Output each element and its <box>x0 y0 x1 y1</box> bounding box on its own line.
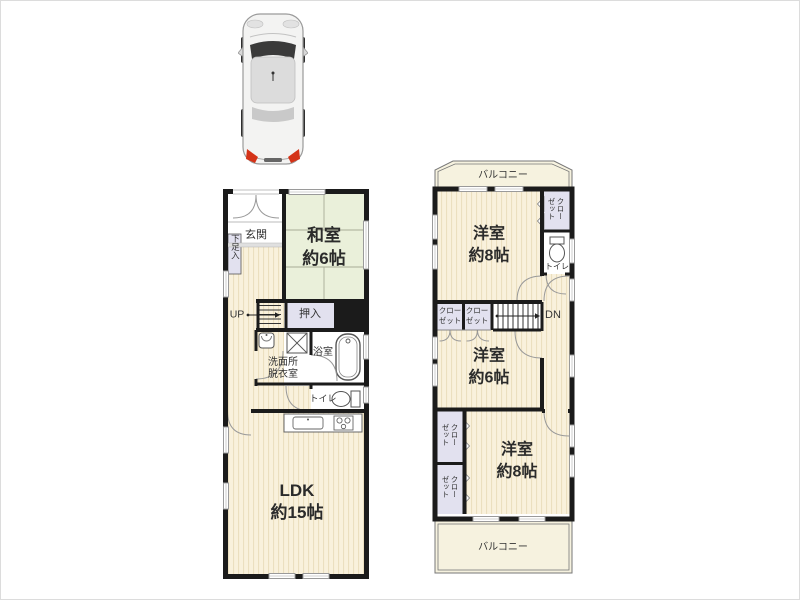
label-bathroom: 浴室 <box>313 348 333 359</box>
label-shoe-cabinet: 下足入 <box>230 234 240 274</box>
label-toilet-2f: トイレ <box>545 263 569 271</box>
label-oshiire: 押入 <box>299 309 321 321</box>
label-closet-a2: ゼット <box>439 317 462 325</box>
car-icon <box>238 11 308 169</box>
toilet-icon-2f <box>550 237 565 262</box>
label-washroom-1: 洗面所 <box>268 358 298 369</box>
label-bedroom-top-size: 約8帖 <box>469 249 510 266</box>
stairs-down <box>493 302 541 330</box>
label-washitsu-name: 和室 <box>307 227 341 245</box>
label-ldk-name: LDK <box>280 482 315 500</box>
kitchen-counter-icon <box>284 414 362 432</box>
label-closet-a1: クロー <box>439 307 462 315</box>
car-top-view <box>238 11 308 169</box>
label-bedroom-bottom-name: 洋室 <box>501 443 533 460</box>
hallway-2f <box>542 274 570 411</box>
label-bedroom-bottom-size: 約8帖 <box>497 465 538 482</box>
label-bedroom-top-name: 洋室 <box>473 227 505 244</box>
label-stairs-up: UP <box>230 309 245 320</box>
label-closet-b2: ゼット <box>466 317 489 325</box>
label-ldk-size: 約15帖 <box>271 504 324 522</box>
floorplan-1f: 玄関 下足入 和室 約6帖 UP 押入 洗面所 脱衣室 浴室 トイレ LDK 約… <box>223 189 369 579</box>
washer-icon <box>287 333 307 353</box>
room-bedroom-bottom <box>465 411 570 514</box>
label-closet-top-right: クローゼット <box>547 198 565 225</box>
label-stairs-dn: DN <box>545 310 561 322</box>
label-closet-c: クローゼット <box>441 424 459 451</box>
label-balcony-bottom: バルコニー <box>478 543 528 554</box>
label-genkan: 玄関 <box>245 230 267 242</box>
label-closet-b1: クロー <box>466 307 489 315</box>
label-washitsu-size: 約6帖 <box>302 250 345 268</box>
label-closet-d: クローゼット <box>441 476 459 503</box>
label-bedroom-mid-size: 約6帖 <box>469 371 510 388</box>
label-bedroom-mid-name: 洋室 <box>473 349 505 366</box>
label-toilet-1f: トイレ <box>309 394 336 403</box>
bathtub-icon <box>336 334 360 380</box>
stove-icon <box>334 416 353 430</box>
wall-block <box>334 301 364 330</box>
floorplan-2f: バルコニー 洋室 約8帖 クローゼット トイレ DN クロー ゼット クロー ゼ… <box>431 159 576 576</box>
label-washroom-2: 脱衣室 <box>268 370 298 381</box>
floorplan-canvas: 玄関 下足入 和室 約6帖 UP 押入 洗面所 脱衣室 浴室 トイレ LDK 約… <box>0 0 800 600</box>
label-balcony-top: バルコニー <box>478 171 528 182</box>
sink-icon <box>259 333 274 348</box>
